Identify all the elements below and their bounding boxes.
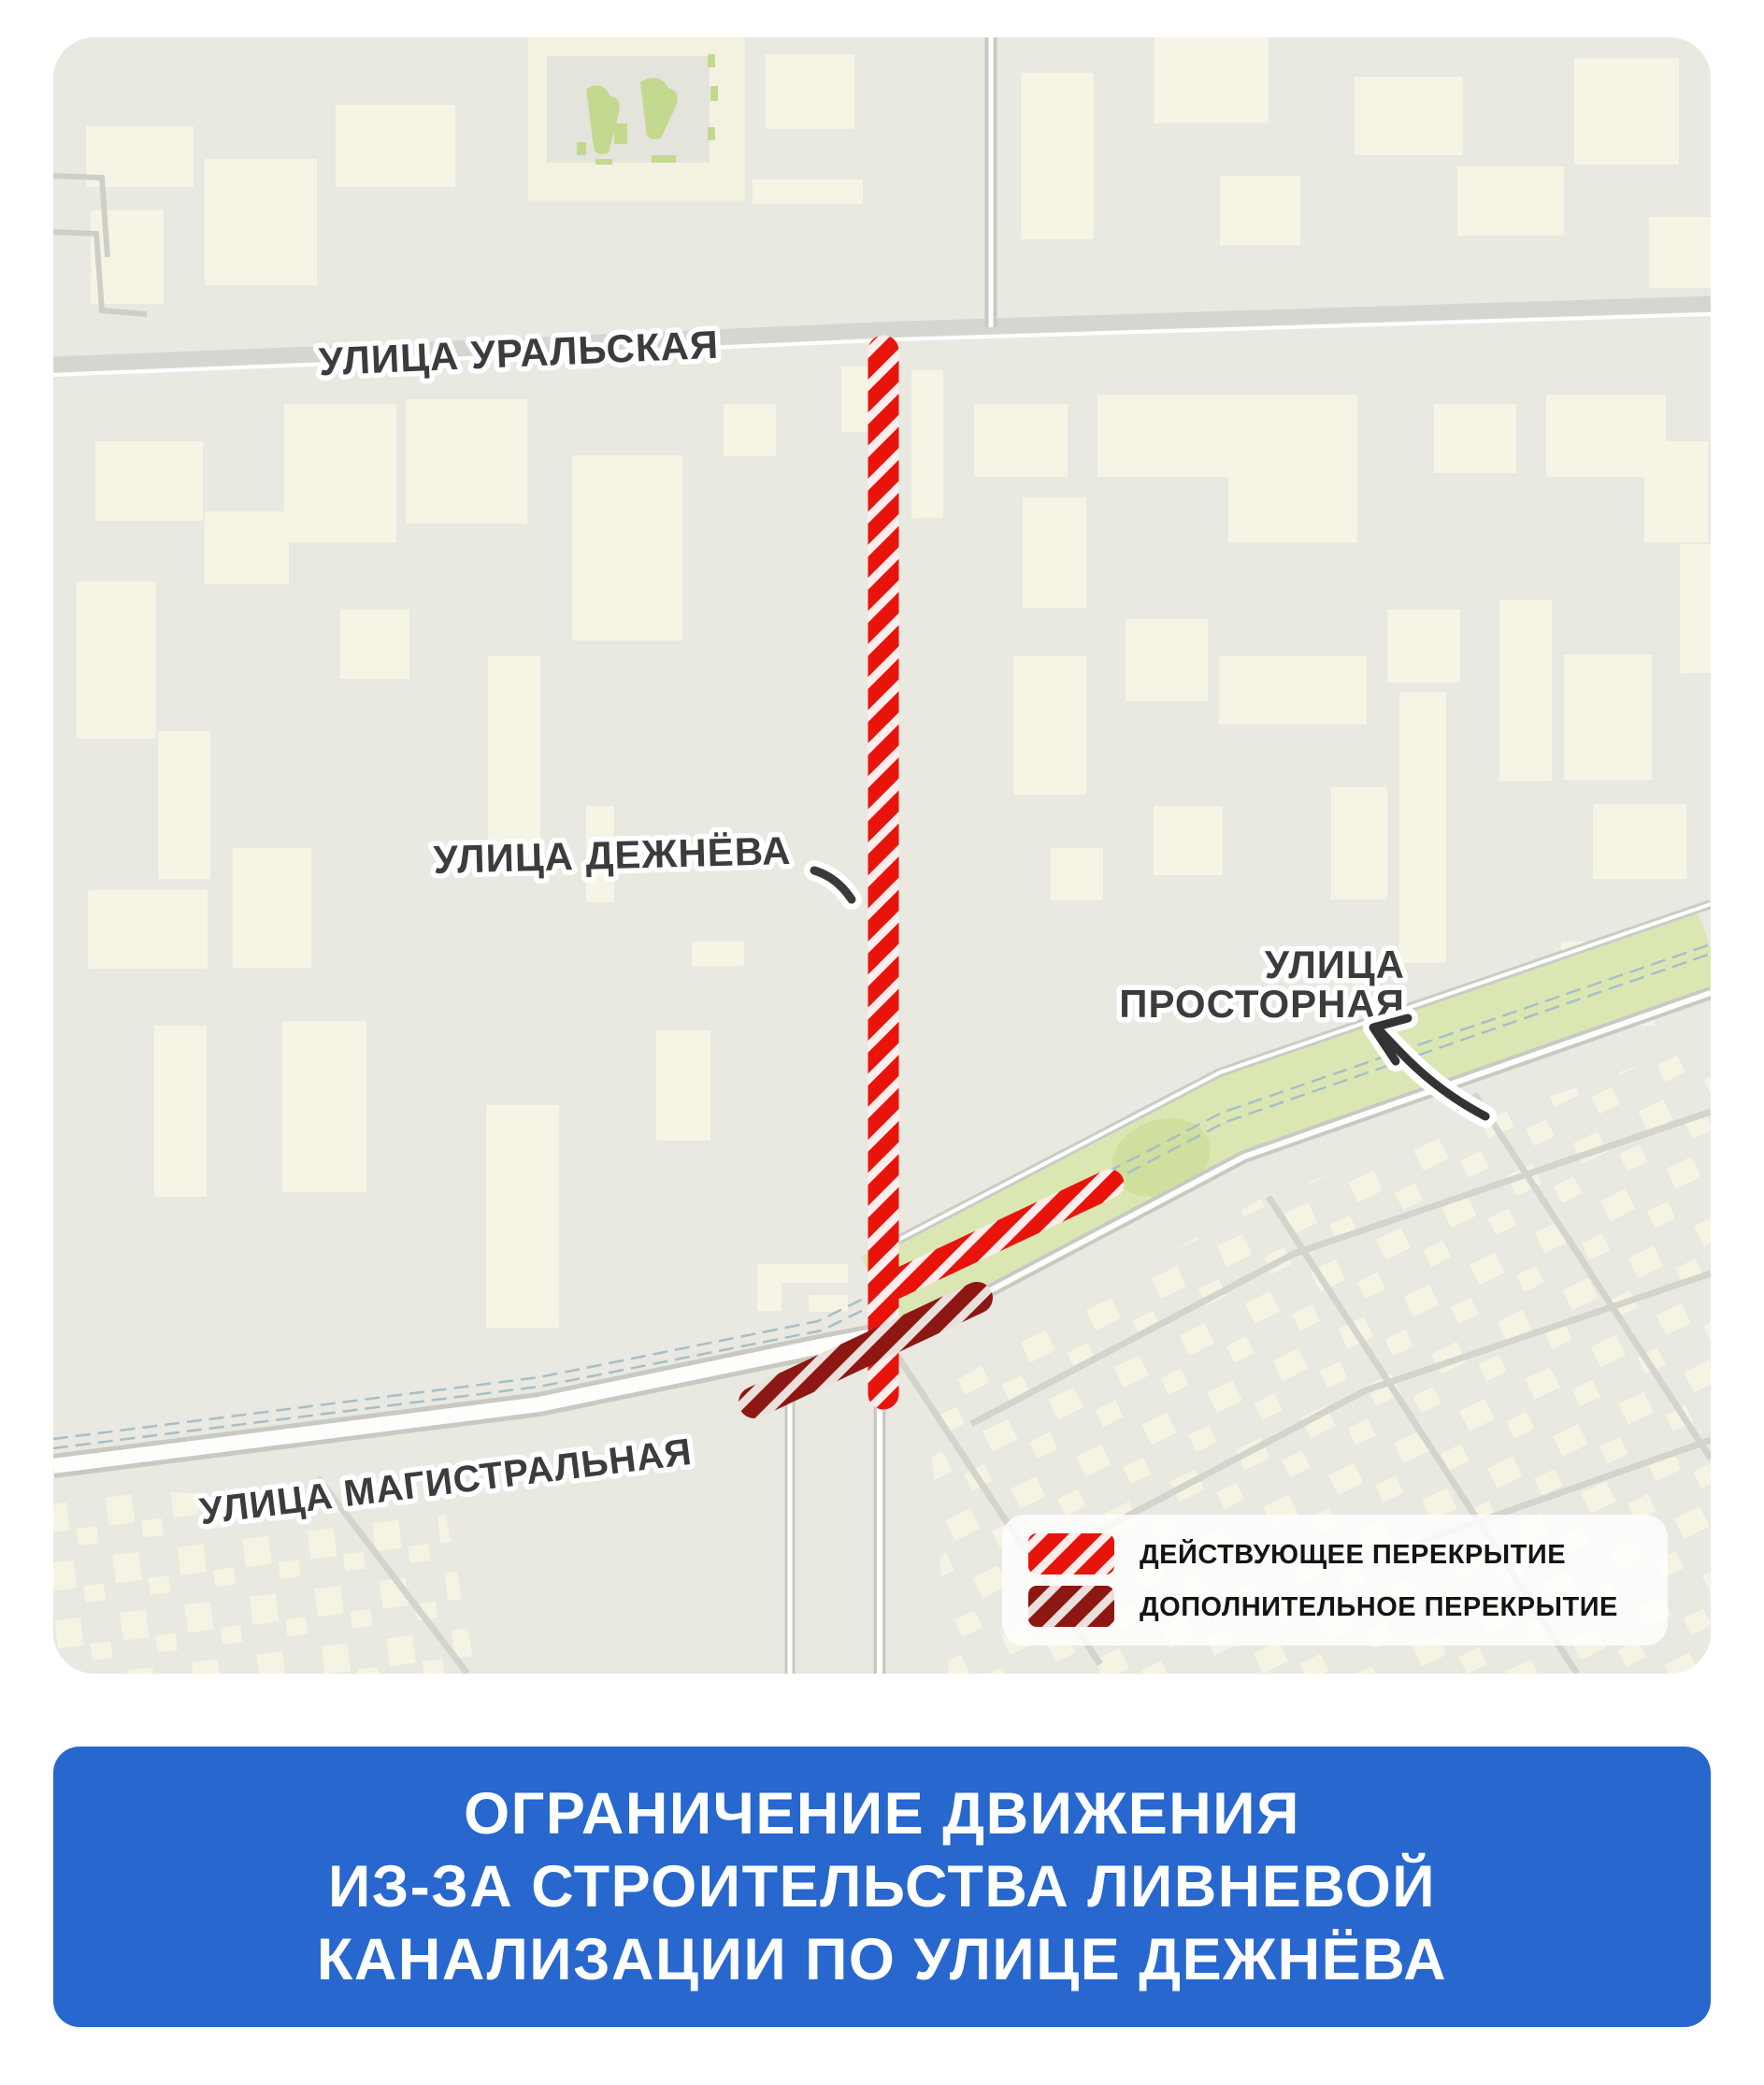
legend-swatch-additional	[1028, 1586, 1114, 1627]
street-label-dezhneva: УЛИЦА ДЕЖНЁВА	[433, 828, 792, 882]
legend-swatch-active	[1028, 1533, 1114, 1575]
banner-line: ИЗ-ЗА СТРОИТЕЛЬСТВА ЛИВНЕВОЙ	[328, 1850, 1436, 1923]
banner-line: ОГРАНИЧЕНИЕ ДВИЖЕНИЯ	[464, 1777, 1300, 1850]
city-map: УЛИЦА УРАЛЬСКАЯ УЛИЦА ДЕЖНЁВА УЛИЦА ПРОС…	[53, 37, 1711, 1674]
map-card: УЛИЦА УРАЛЬСКАЯ УЛИЦА ДЕЖНЁВА УЛИЦА ПРОС…	[53, 37, 1711, 1674]
legend: ДЕЙСТВУЮЩЕЕ ПЕРЕКРЫТИЕ ДОПОЛНИТЕЛЬНОЕ ПЕ…	[1002, 1515, 1668, 1646]
street-label-prostornaya-line1: УЛИЦА	[1265, 942, 1405, 986]
park-area	[528, 37, 745, 201]
title-banner: ОГРАНИЧЕНИЕ ДВИЖЕНИЯ ИЗ-ЗА СТРОИТЕЛЬСТВА…	[53, 1747, 1711, 2027]
legend-label-active: ДЕЙСТВУЮЩЕЕ ПЕРЕКРЫТИЕ	[1140, 1538, 1566, 1570]
legend-label-additional: ДОПОЛНИТЕЛЬНОЕ ПЕРЕКРЫТИЕ	[1140, 1592, 1618, 1622]
street-label-prostornaya-line2: ПРОСТОРНАЯ	[1119, 982, 1405, 1026]
banner-line: КАНАЛИЗАЦИИ ПО УЛИЦЕ ДЕЖНЁВА	[317, 1923, 1447, 1996]
